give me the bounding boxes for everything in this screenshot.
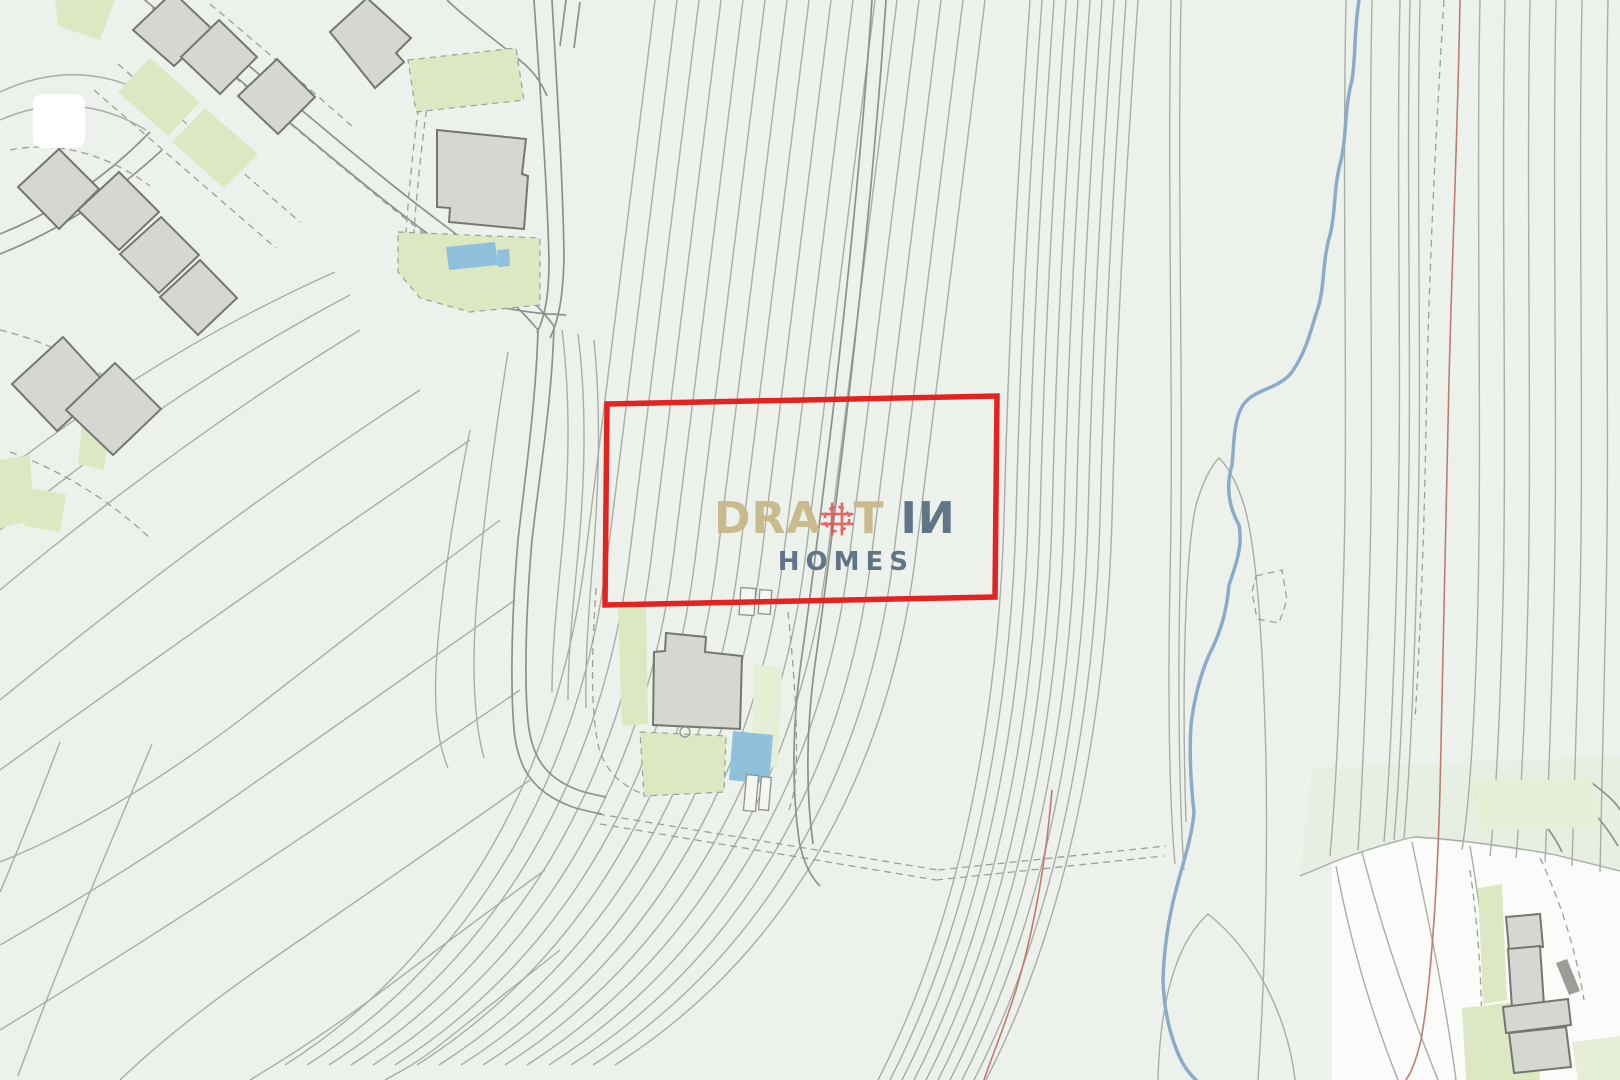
watermark-tick-mark	[888, 515, 899, 532]
drafting-target-icon	[819, 497, 855, 541]
swimming-pool	[497, 249, 510, 267]
site-plan-map: DRA TIИ HOMES	[0, 0, 1620, 1080]
watermark-logo: DRA TIИ HOMES	[714, 496, 908, 577]
building	[330, 0, 411, 88]
watermark-brand-row: DRA TIИ	[714, 496, 908, 542]
building	[1508, 946, 1544, 1008]
white-marker	[33, 94, 85, 148]
building	[437, 130, 528, 229]
building	[653, 633, 742, 729]
building	[238, 59, 315, 134]
watermark-text-dra: DRA	[714, 497, 821, 541]
buildings-top-left	[12, 0, 411, 455]
building	[1509, 1027, 1571, 1073]
watermark-text-t: T	[853, 497, 884, 541]
watermark-text-in: IИ	[900, 497, 955, 541]
watermark-homes-row: HOMES	[714, 547, 914, 577]
building	[1506, 914, 1543, 950]
watermark-text-homes: HOMES	[778, 547, 914, 577]
stream-line	[1163, 0, 1359, 1080]
